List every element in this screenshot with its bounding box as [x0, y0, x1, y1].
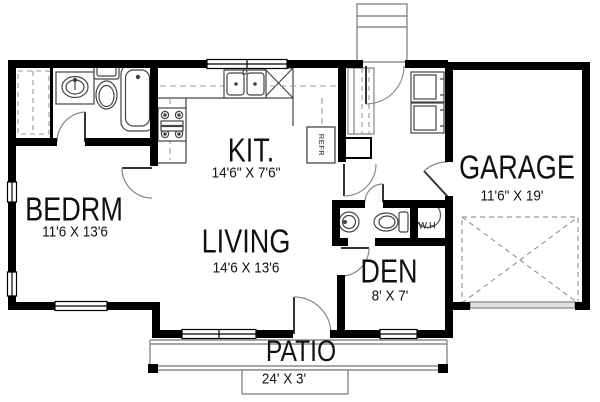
refrigerator-label: REFR [317, 134, 325, 156]
garage-markings [462, 217, 578, 303]
garage-entry-door-leaf [424, 171, 448, 197]
water-heater-label: W.H [419, 222, 436, 231]
halfbath-sink [339, 212, 359, 232]
bedroom-door-arc [122, 168, 152, 198]
bathtub [121, 65, 154, 131]
patio-dimensions: 24' X 3' [262, 372, 306, 387]
patio-door-arc [294, 297, 331, 334]
hall-door-arc [344, 164, 376, 196]
living-dimensions: 14'6 X 13'6 [213, 261, 280, 276]
linen-closet [344, 138, 371, 158]
kitchen-window [207, 60, 287, 69]
toilet [94, 64, 119, 109]
washer-dryer [411, 72, 444, 133]
kitchen-dimensions: 14'6" X 7'6" [212, 166, 281, 181]
garage-entry-door-arc [424, 162, 448, 171]
den-window [380, 330, 417, 339]
bedroom-left-window-upper [8, 182, 17, 202]
patio-label: PATIO [266, 337, 336, 367]
bath-sink [56, 72, 94, 104]
bedroom-bottom-window [55, 302, 107, 311]
garage-dimensions: 11'6" X 19' [481, 189, 544, 204]
hall-closet [348, 68, 374, 134]
garage-door [470, 302, 575, 308]
den-label: DEN [360, 255, 417, 288]
living-label: LIVING [202, 225, 291, 258]
halfbath-door-arc [365, 184, 383, 202]
den-dimensions: 8' X 7' [372, 289, 409, 304]
living-window [182, 330, 256, 339]
stove [158, 108, 186, 141]
floor-plan: BEDRM 11'6 X 13'6 KIT. 14'6" X 7'6" LIVI… [0, 0, 600, 402]
bedroom-left-window-lower [8, 272, 17, 296]
bath-door-arc [57, 112, 85, 142]
halfbath-toilet [374, 212, 408, 232]
bedroom-dimensions: 11'6 X 13'6 [42, 225, 108, 240]
entry-stoop [357, 4, 407, 62]
kitchen-label: KIT. [228, 134, 275, 167]
bedroom-closet [18, 71, 49, 134]
kitchen-sink [224, 70, 266, 98]
bedroom-label: BEDRM [25, 193, 123, 226]
garage-label: GARAGE [459, 151, 575, 184]
